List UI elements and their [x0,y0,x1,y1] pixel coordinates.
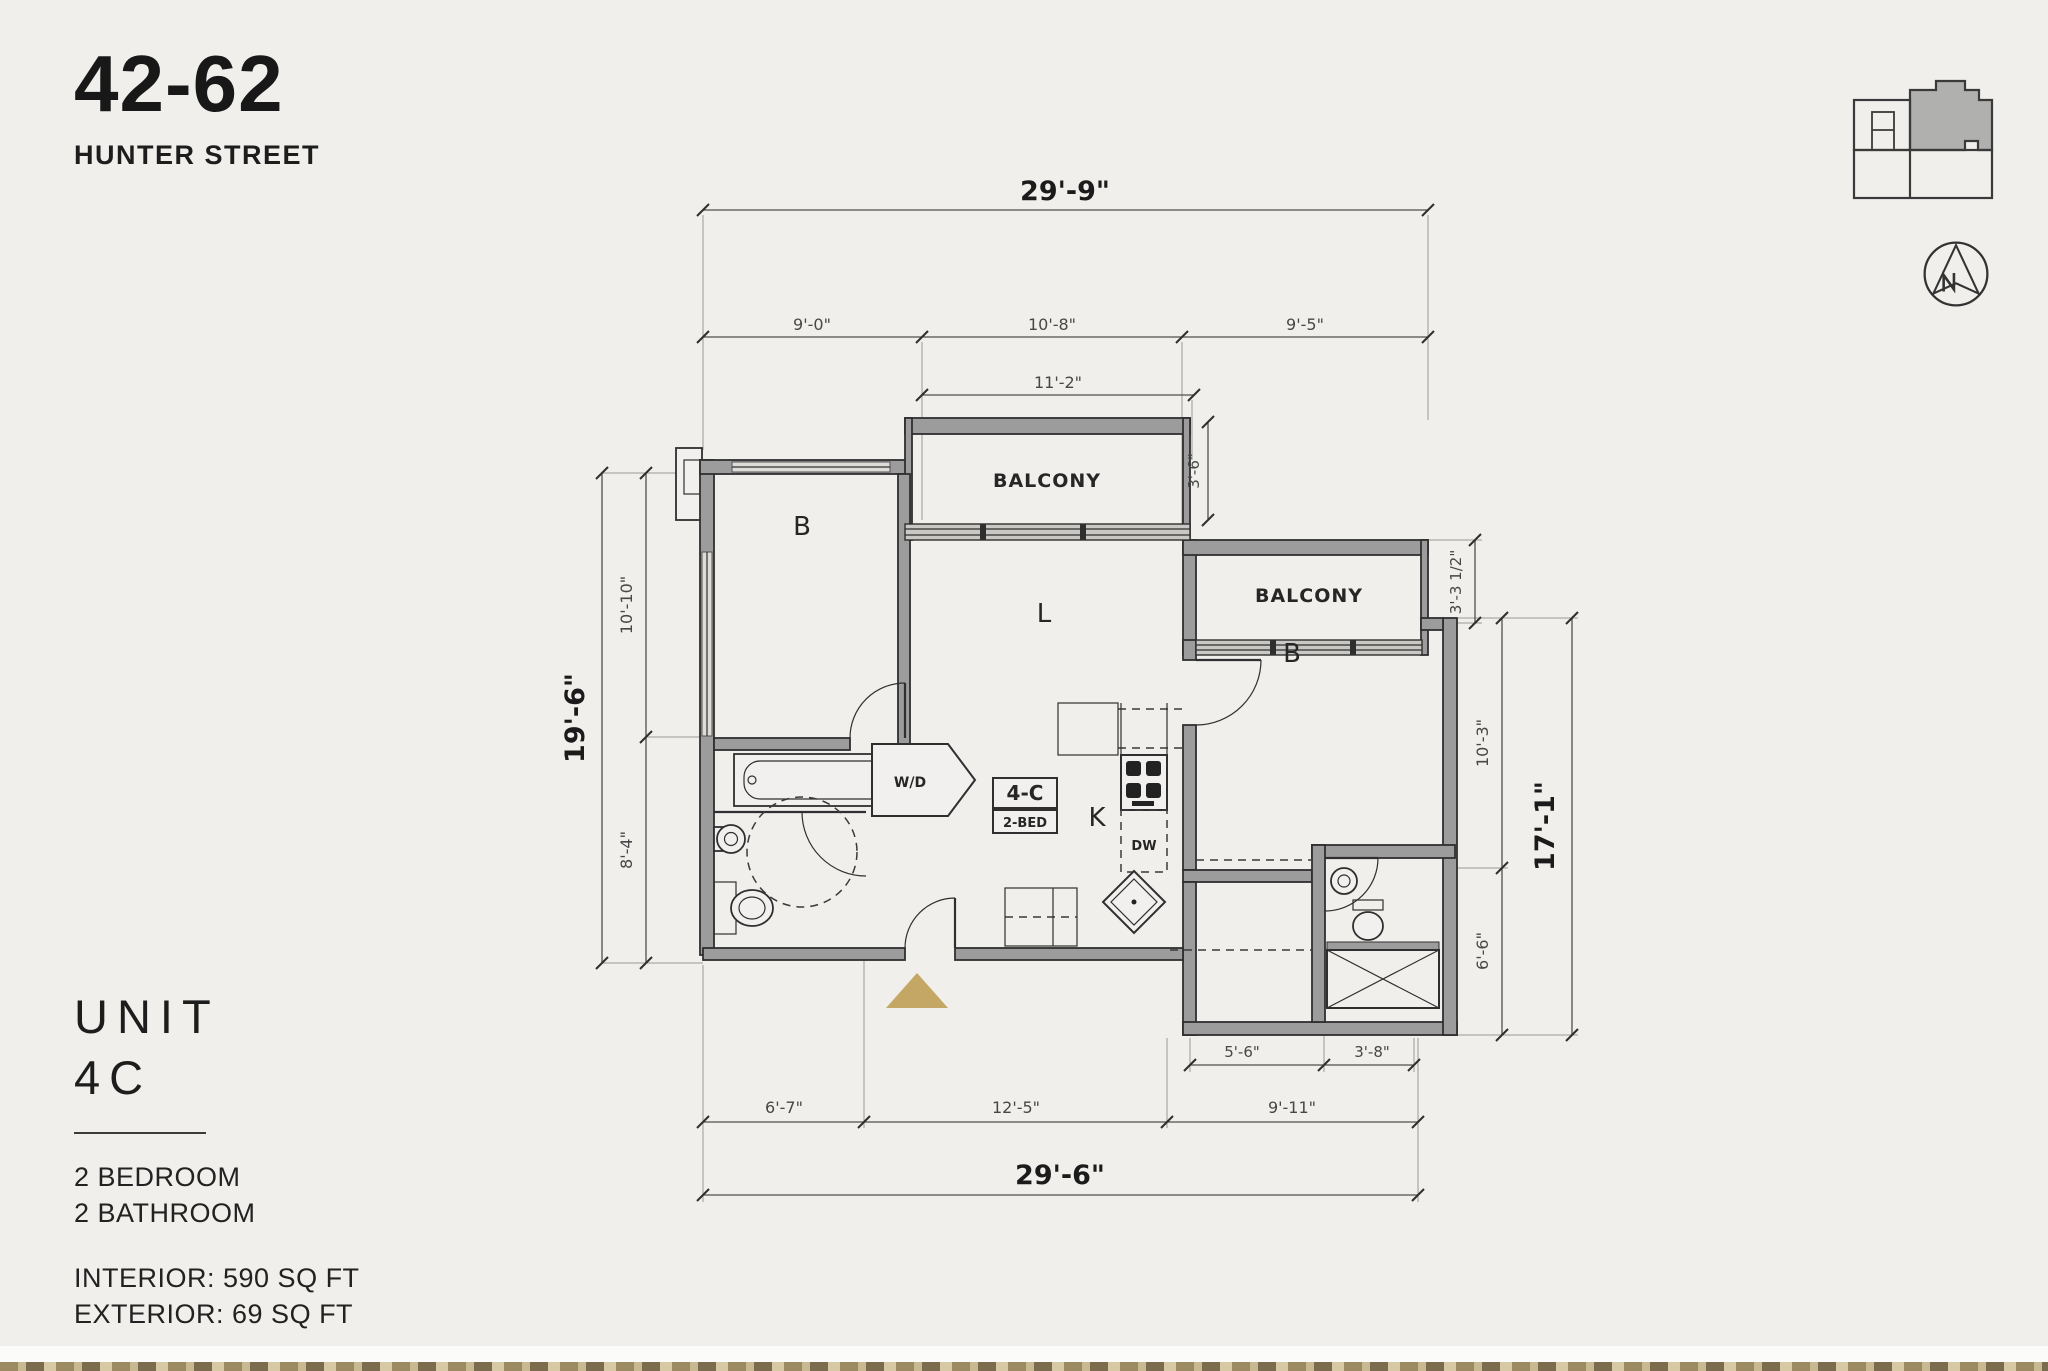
unit-title-line1: UNIT [74,986,360,1047]
wall-bedroom1-bottom [714,738,850,750]
wall-bottom-left [703,948,905,960]
wall-bathroom2-left [1312,845,1325,1022]
wall-balcony2-top [1183,540,1428,555]
dim-right-overall: 17'-1" [1530,781,1561,871]
exterior-area: EXTERIOR: 69 SQ FT [74,1297,360,1333]
window-balcony1 [905,524,1190,540]
entry-marker [886,973,948,1008]
wall-pier [676,448,702,520]
unit-areas: INTERIOR: 590 SQ FT EXTERIOR: 69 SQ FT [74,1261,360,1332]
room-label-balcony2: BALCONY [1255,585,1363,607]
floorplan-page: { "page": { "background": "#f0efec", "ac… [0,0,2048,1371]
unit-title-line2: 4C [74,1047,360,1108]
dim-bottomright-seg2: 3'-8" [1354,1043,1390,1061]
room-label-balcony1: BALCONY [993,470,1101,492]
building-number: 42-62 [74,44,320,124]
unit-tag-sub-label: 2-BED [1003,816,1047,831]
room-label-living: L [1037,599,1052,629]
brand-block: 42-62 HUNTER STREET [74,44,320,171]
dishwasher-label: DW [1131,839,1156,854]
dim-balcony1-depth: 3'-6" [1185,453,1203,489]
dim-right-seg2: 6'-6" [1473,932,1492,970]
dim-top-seg2: 10'-8" [1028,315,1076,334]
dim-bottom-seg2: 12'-5" [992,1098,1040,1117]
room-label-bedroom1: B [793,512,811,542]
wall-bedroom2-bottom [1183,870,1312,882]
sink1 [731,890,773,926]
washer-dryer-label: W/D [894,775,926,791]
wall-balcony1-top [905,418,1190,434]
building-street: HUNTER STREET [74,140,320,171]
interior-area: INTERIOR: 590 SQ FT [74,1261,360,1297]
dim-top-seg1: 9'-0" [793,315,831,334]
wall-living-balcony2 [1183,540,1196,655]
dim-top-overall: 29'-9" [1020,176,1110,207]
dim-left-overall: 19'-6" [560,673,591,763]
dim-left-seg2: 8'-4" [617,831,636,869]
dim-balcony1-width: 11'-2" [1034,373,1082,392]
sink2 [1331,868,1357,894]
toilet2-tank [1353,900,1383,910]
room-label-bedroom2: B [1283,639,1301,669]
wall-bathroom2-top [1312,845,1455,858]
divider-line [74,1132,206,1134]
page-bottom-white-strip [0,1346,2048,1362]
unit-tag: 4-C 2-BED [993,778,1057,833]
wall-bottom-center [955,948,1183,960]
toilet1 [717,825,745,853]
keyplan-unit-highlight [1910,81,1992,150]
dim-bottom-overall: 29'-6" [1015,1160,1105,1191]
dimensions-left: 19'-6" 10'-10" 8'-4" [560,467,652,969]
unit-tag-label: 4-C [1007,781,1044,805]
bathroom-count: 2 BATHROOM [74,1196,360,1232]
dim-top-seg3: 9'-5" [1286,315,1324,334]
unit-title: UNIT 4C [74,986,360,1108]
north-compass-icon [1920,238,1992,310]
unit-rooms: 2 BEDROOM 2 BATHROOM [74,1160,360,1231]
page-bottom-edge [0,1362,2048,1371]
dim-right-seg1: 10'-3" [1473,719,1492,767]
room-label-kitchen: K [1088,803,1106,833]
wall-bedroom2-left [1183,725,1196,870]
kitchen-counter [1058,703,1118,755]
bedroom-count: 2 BEDROOM [74,1160,360,1196]
wall-right [1443,618,1457,1035]
north-arrow [1933,245,1978,293]
keyplan-icon [1848,62,1998,212]
window-balcony2 [1196,640,1422,655]
dim-bottom-seg1: 6'-7" [765,1098,803,1117]
wall-bottom-right [1183,1022,1457,1035]
floor-plan: W/D DW 4-C 2-BED [520,160,1620,1260]
dimensions-right: 3'-3 1/2" 10'-3" 6'-6" 17'-1" [1447,534,1578,1041]
unit-info-block: UNIT 4C 2 BEDROOM 2 BATHROOM INTERIOR: 5… [74,986,360,1333]
dim-left-seg1: 10'-10" [617,576,636,634]
extension-lines [602,215,1578,1202]
dim-bottomright-seg1: 5'-6" [1224,1043,1260,1061]
dim-bottom-seg3: 9'-11" [1268,1098,1316,1117]
dimensions-bottom: 5'-6" 3'-8" 6'-7" 12'-5" 9'-11" 29'-6" [697,1043,1424,1201]
bathroom2-fixtures [1327,868,1439,1008]
toilet2 [1353,912,1383,940]
washer-dryer-closet: W/D [872,744,975,816]
dim-balcony2-depth: 3'-3 1/2" [1447,550,1465,614]
